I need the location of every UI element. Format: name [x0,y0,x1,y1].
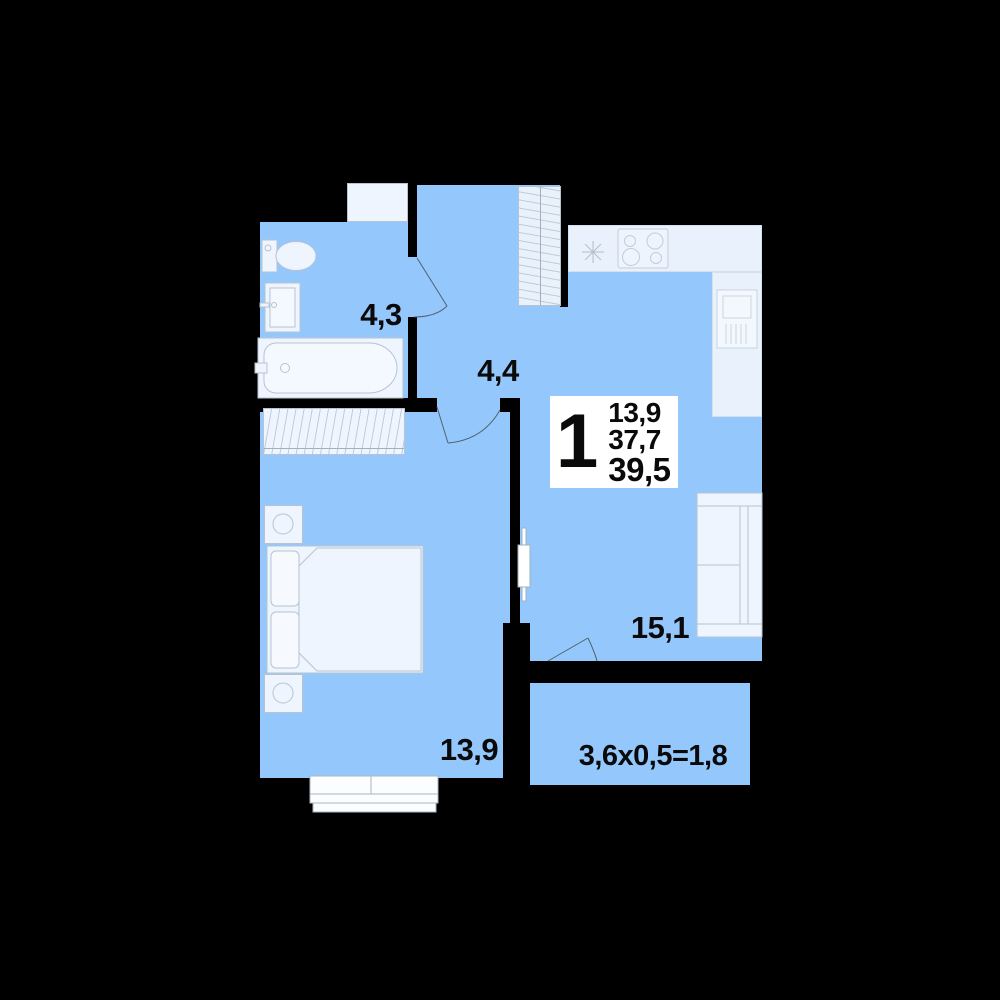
room-label-living-kitchen: 15,1 [610,612,710,643]
wall-segment [503,663,530,790]
apartment-info-card: 1 13,9 37,7 39,5 [550,396,678,488]
wall-segment [558,206,780,225]
nightstand [264,674,303,713]
room-label-balcony: 3,6x0,5=1,8 [553,742,753,771]
vent-shaft [347,183,408,222]
hall-wardrobe [518,186,561,306]
wall-segment [248,206,260,792]
wall-segment [250,206,353,222]
wall-segment [408,183,417,257]
wall-segment [404,168,570,185]
kitchen-counter-top [568,225,762,272]
floor-plan: 4,3 4,4 13,9 15,1 3,6x0,5=1,8 1 13,9 37,… [0,0,1000,1000]
bedroom-window [310,776,438,812]
room-label-hallway: 4,4 [458,355,538,386]
room-label-bathroom: 4,3 [341,299,421,330]
bedroom-wardrobe [263,408,405,455]
room-label-bedroom: 13,9 [419,734,519,765]
nightstand [264,505,303,544]
area-value-2: 37,7 [608,426,670,453]
wall-segment [438,778,510,792]
wall-segment [560,183,568,307]
wall-segment [503,623,530,663]
rooms-count: 1 [556,408,598,476]
bedroom-floor [258,400,510,780]
area-value-3: 39,5 [608,454,670,485]
area-value-1: 13,9 [608,399,670,426]
wall-segment [510,398,520,623]
wall-segment [762,206,778,683]
wall-segment [248,778,310,792]
kitchen-counter-right [712,272,762,417]
wall-segment [503,661,765,683]
